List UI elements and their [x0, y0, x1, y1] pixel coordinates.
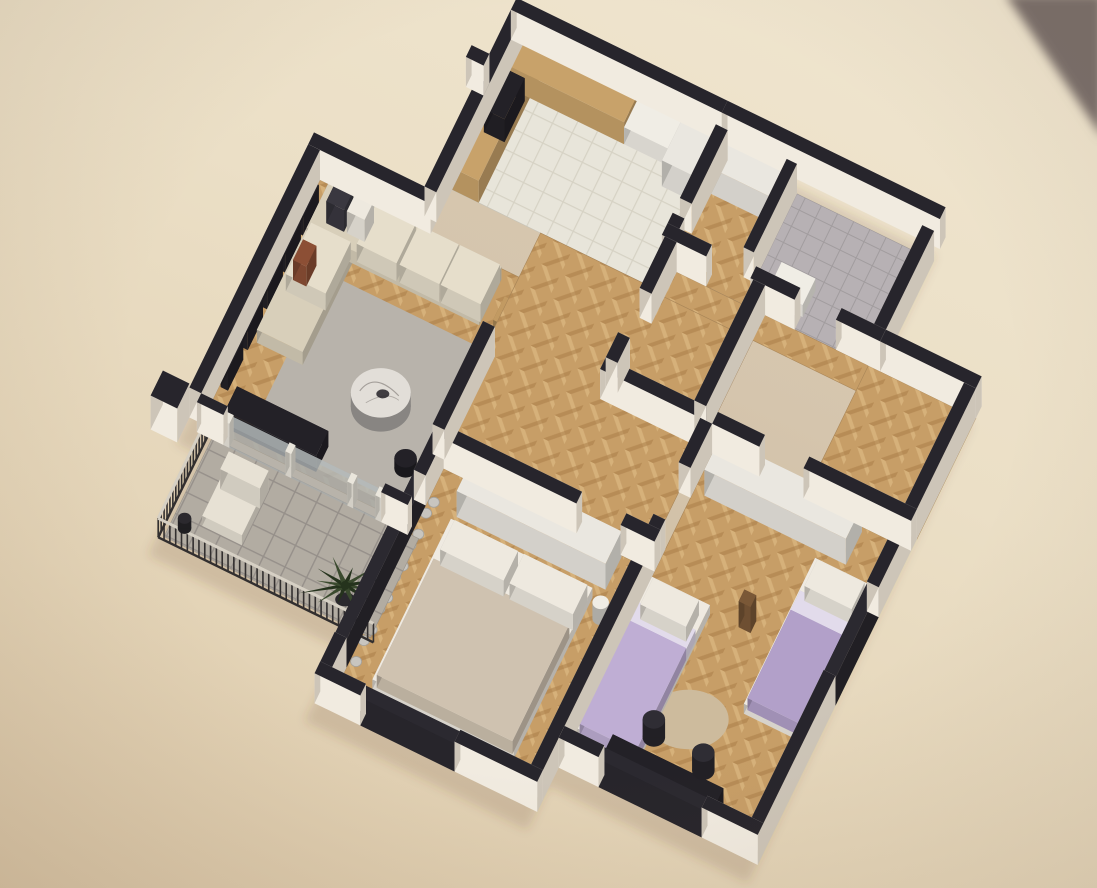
photo-background-corner — [1005, 0, 1097, 138]
round-marble-coffee-table — [351, 368, 411, 432]
office-chair — [643, 710, 666, 747]
valet-stand — [739, 590, 757, 634]
office-chair — [692, 743, 715, 780]
exterior-wall-stub — [466, 45, 489, 96]
apartment-3d-floor-plan — [0, 0, 1097, 888]
floor-plan-photo — [0, 0, 1097, 888]
balcony-plant-pot — [178, 513, 192, 534]
